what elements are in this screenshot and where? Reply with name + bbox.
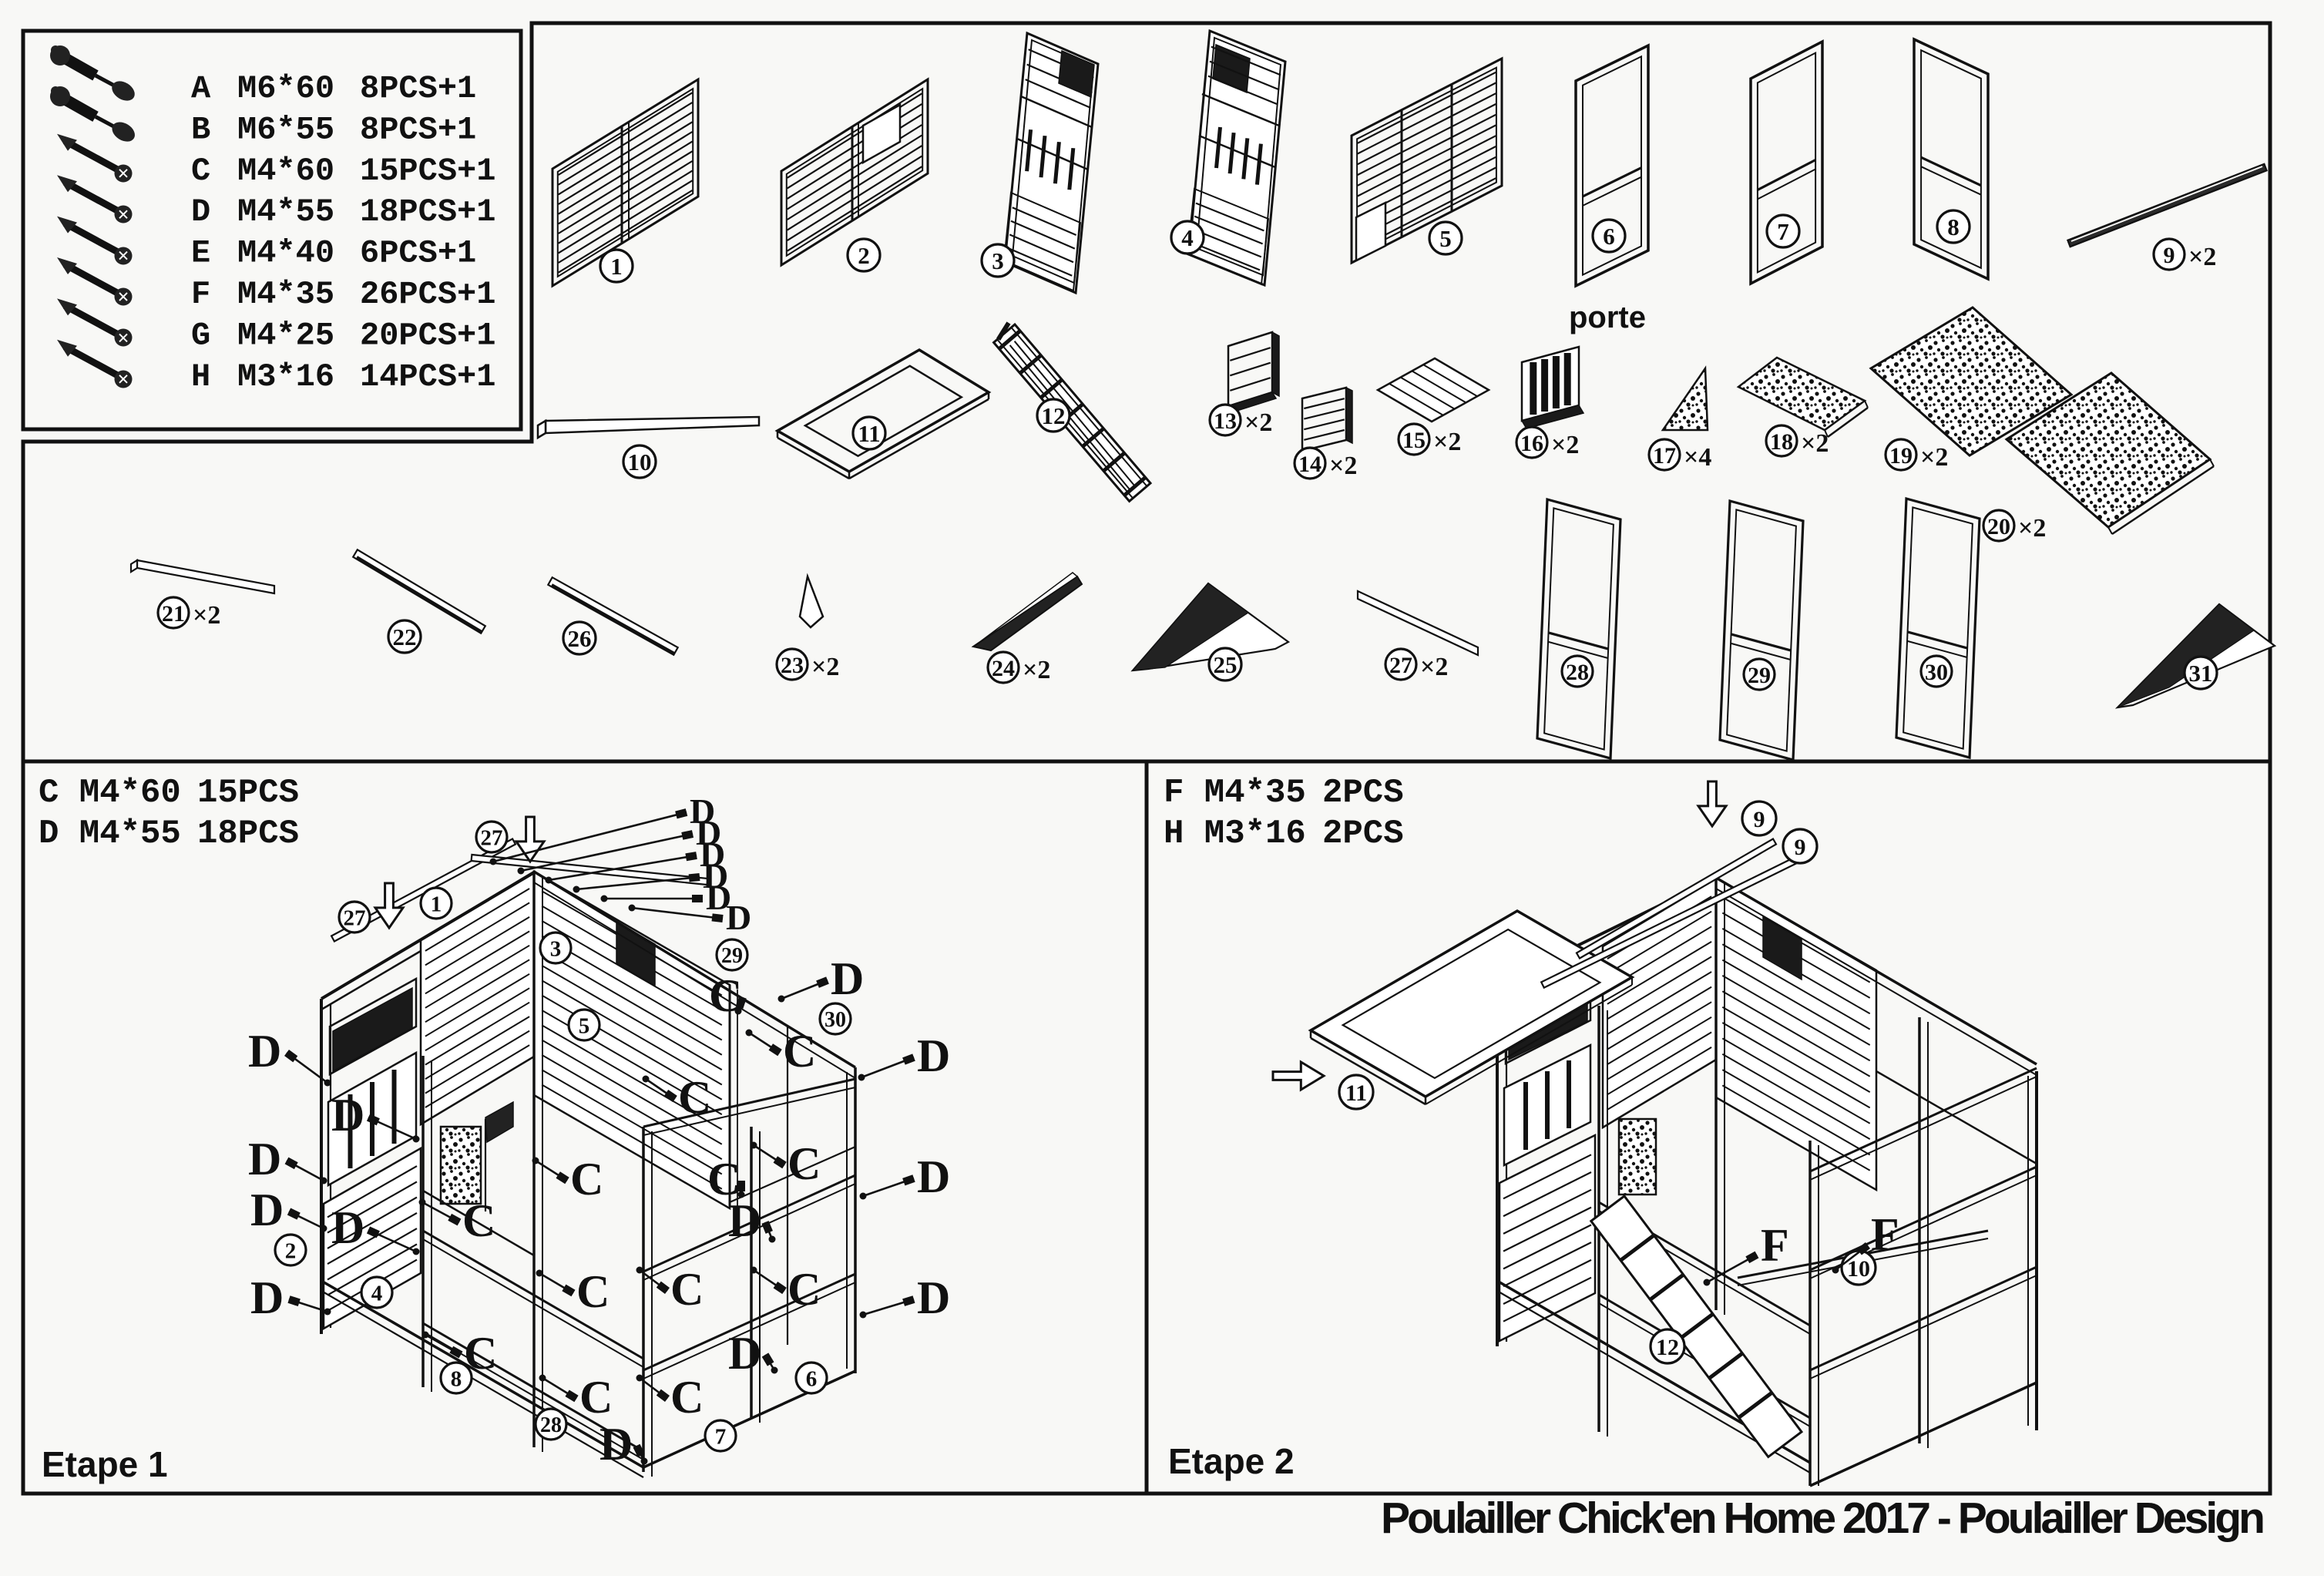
svg-text:C: C	[788, 1264, 821, 1315]
svg-text:M3*16: M3*16	[237, 358, 334, 395]
svg-text:C: C	[579, 1372, 613, 1423]
svg-text:×2: ×2	[1244, 408, 1272, 437]
svg-text:C: C	[570, 1154, 603, 1205]
svg-text:Etape 1: Etape 1	[42, 1444, 168, 1484]
svg-text:9: 9	[1754, 807, 1765, 832]
svg-text:D: D	[248, 1134, 281, 1185]
svg-text:18: 18	[1770, 429, 1793, 455]
svg-text:2PCS: 2PCS	[1322, 815, 1404, 853]
svg-text:14PCS+1: 14PCS+1	[360, 358, 495, 395]
svg-text:C: C	[464, 1328, 497, 1379]
svg-text:M6*55: M6*55	[237, 111, 334, 148]
svg-text:M4*60: M4*60	[237, 153, 334, 190]
svg-text:1: 1	[610, 253, 623, 280]
svg-text:D M4*55: D M4*55	[39, 815, 181, 853]
svg-text:28: 28	[1566, 660, 1589, 685]
svg-text:D: D	[250, 1185, 284, 1235]
svg-text:×2: ×2	[1420, 653, 1448, 681]
svg-text:15PCS: 15PCS	[197, 774, 299, 812]
svg-text:7: 7	[715, 1424, 727, 1449]
svg-text:B: B	[191, 111, 210, 148]
svg-text:×2: ×2	[811, 653, 839, 681]
svg-text:10: 10	[628, 449, 652, 475]
svg-text:D: D	[248, 1026, 281, 1077]
svg-text:×2: ×2	[1433, 428, 1461, 456]
svg-text:2: 2	[858, 242, 870, 269]
svg-text:25: 25	[1214, 651, 1238, 678]
svg-text:G: G	[191, 317, 210, 354]
svg-text:D: D	[917, 1272, 950, 1323]
svg-text:2: 2	[285, 1238, 297, 1263]
svg-text:D: D	[331, 1202, 364, 1253]
svg-text:9: 9	[1795, 835, 1806, 860]
svg-text:19: 19	[1889, 443, 1913, 469]
svg-text:1: 1	[431, 892, 442, 916]
svg-text:3: 3	[992, 247, 1004, 274]
svg-text:×2: ×2	[1920, 443, 1948, 472]
svg-text:C: C	[788, 1138, 821, 1189]
svg-text:20PCS+1: 20PCS+1	[360, 317, 495, 354]
svg-text:9: 9	[2164, 243, 2175, 268]
svg-text:27: 27	[1389, 653, 1412, 678]
svg-text:31: 31	[2189, 660, 2213, 687]
svg-text:4: 4	[371, 1281, 383, 1305]
svg-text:8PCS+1: 8PCS+1	[360, 70, 476, 107]
svg-text:3: 3	[550, 936, 562, 961]
svg-text:27: 27	[344, 906, 366, 930]
svg-text:12: 12	[1042, 402, 1066, 429]
svg-text:C: C	[462, 1195, 495, 1246]
svg-text:2PCS: 2PCS	[1322, 774, 1404, 812]
svg-text:M4*35: M4*35	[237, 276, 334, 313]
svg-text:C: C	[670, 1372, 704, 1423]
svg-text:22: 22	[393, 623, 417, 650]
svg-text:6: 6	[1603, 223, 1615, 250]
svg-text:D: D	[917, 1151, 950, 1202]
svg-text:12: 12	[1656, 1335, 1679, 1360]
svg-text:30: 30	[1925, 660, 1948, 685]
svg-text:D: D	[599, 1419, 633, 1470]
svg-text:D: D	[917, 1030, 950, 1081]
svg-text:C M4*60: C M4*60	[39, 774, 181, 812]
svg-text:D: D	[250, 1272, 284, 1323]
svg-text:M4*55: M4*55	[237, 193, 334, 230]
svg-text:24: 24	[992, 656, 1015, 681]
svg-text:27: 27	[481, 825, 503, 850]
svg-text:D: D	[191, 193, 210, 230]
svg-text:7: 7	[1777, 218, 1789, 245]
svg-text:F: F	[1761, 1220, 1789, 1271]
svg-text:A: A	[191, 70, 211, 107]
svg-text:6PCS+1: 6PCS+1	[360, 235, 476, 272]
svg-text:28: 28	[540, 1413, 562, 1437]
svg-text:E: E	[191, 235, 210, 272]
svg-text:D: D	[726, 898, 751, 937]
svg-text:20: 20	[1987, 514, 2010, 539]
svg-text:×2: ×2	[2188, 243, 2216, 271]
svg-text:C: C	[191, 153, 210, 190]
svg-text:porte: porte	[1569, 301, 1646, 334]
svg-text:15PCS+1: 15PCS+1	[360, 153, 495, 190]
svg-text:26: 26	[568, 625, 592, 652]
svg-text:Poulailler Chick'en Home 2017: Poulailler Chick'en Home 2017 - Poulaill…	[1381, 1494, 2265, 1543]
svg-text:6: 6	[806, 1366, 818, 1391]
svg-text:C: C	[576, 1266, 610, 1317]
svg-text:18PCS+1: 18PCS+1	[360, 193, 495, 230]
svg-text:Etape 2: Etape 2	[1168, 1441, 1295, 1481]
svg-text:C: C	[707, 1154, 741, 1205]
svg-text:5: 5	[579, 1013, 590, 1038]
svg-text:30: 30	[824, 1008, 846, 1032]
svg-text:M4*25: M4*25	[237, 317, 334, 354]
svg-text:×4: ×4	[1684, 443, 1711, 472]
svg-text:C: C	[678, 1072, 711, 1123]
svg-text:29: 29	[1748, 663, 1771, 688]
svg-text:D: D	[831, 953, 864, 1004]
svg-text:M4*40: M4*40	[237, 235, 334, 272]
svg-text:8: 8	[1947, 213, 1960, 240]
svg-text:15: 15	[1402, 428, 1426, 453]
svg-text:17: 17	[1653, 443, 1676, 469]
svg-text:F: F	[1871, 1209, 1899, 1260]
svg-text:14: 14	[1298, 452, 1322, 477]
svg-text:H: H	[191, 358, 210, 395]
svg-text:21: 21	[162, 601, 185, 627]
svg-text:×2: ×2	[1023, 656, 1050, 684]
svg-text:F: F	[191, 276, 210, 313]
svg-text:C: C	[783, 1026, 816, 1077]
svg-text:8: 8	[451, 1366, 462, 1391]
svg-text:11: 11	[858, 420, 880, 447]
svg-text:11: 11	[1345, 1080, 1367, 1106]
svg-text:4: 4	[1181, 224, 1194, 251]
svg-text:16: 16	[1520, 431, 1543, 456]
svg-text:D: D	[728, 1328, 761, 1379]
svg-text:13: 13	[1214, 408, 1237, 434]
svg-text:×2: ×2	[1801, 429, 1829, 458]
svg-text:×2: ×2	[1551, 431, 1579, 459]
svg-text:M6*60: M6*60	[237, 70, 334, 107]
svg-text:23: 23	[781, 653, 804, 678]
svg-text:D: D	[331, 1090, 364, 1141]
svg-text:26PCS+1: 26PCS+1	[360, 276, 495, 313]
svg-text:C: C	[670, 1264, 704, 1315]
svg-text:F M4*35: F M4*35	[1164, 774, 1306, 812]
svg-text:18PCS: 18PCS	[197, 815, 299, 853]
svg-text:H M3*16: H M3*16	[1164, 815, 1306, 853]
svg-text:×2: ×2	[1329, 452, 1357, 480]
svg-text:29: 29	[721, 944, 743, 968]
svg-text:×2: ×2	[193, 601, 220, 630]
svg-text:×2: ×2	[2018, 514, 2046, 543]
svg-text:5: 5	[1439, 225, 1452, 252]
svg-text:8PCS+1: 8PCS+1	[360, 111, 476, 148]
